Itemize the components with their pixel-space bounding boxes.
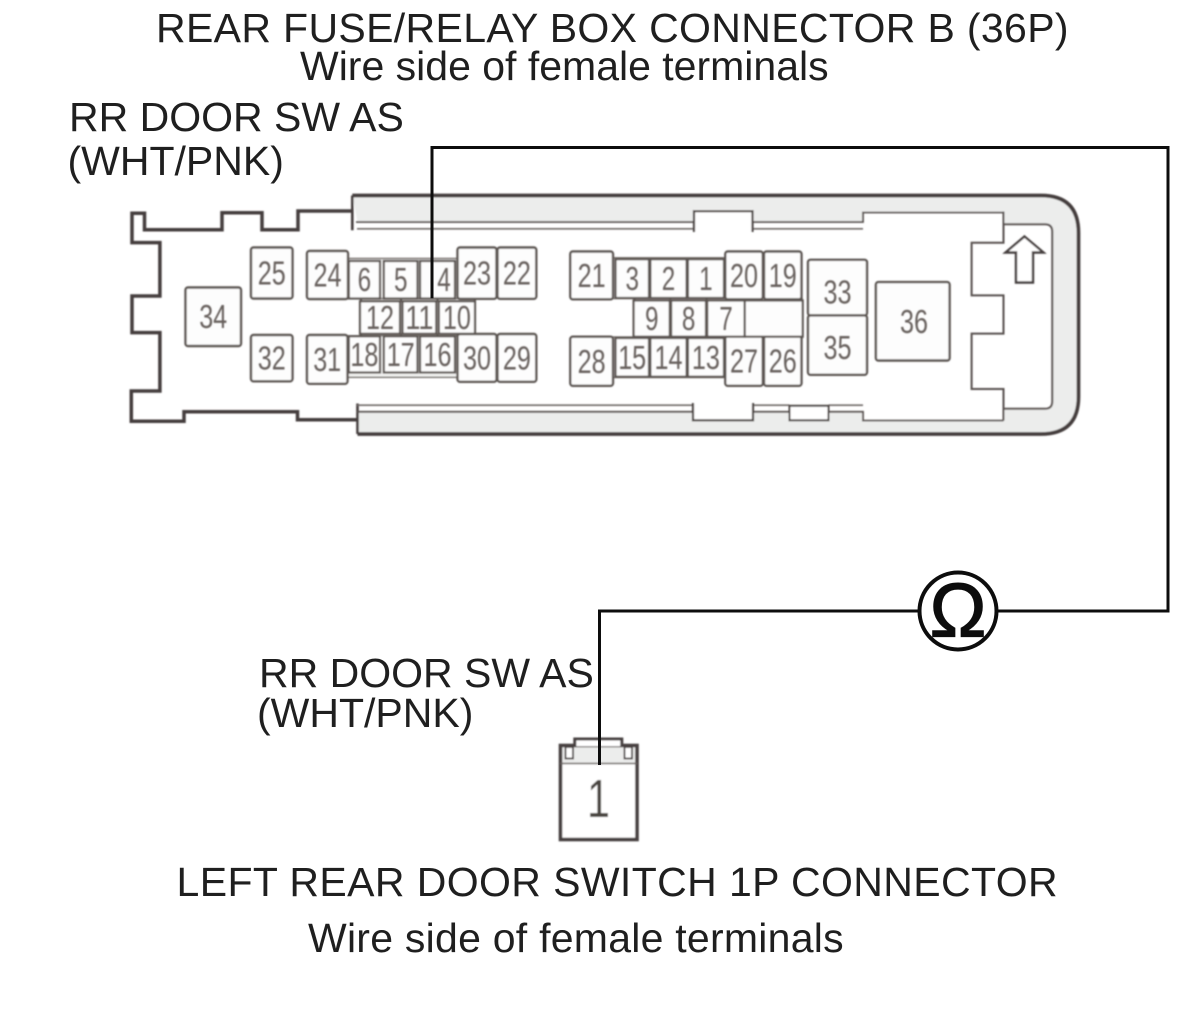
svg-text:1: 1 [699, 260, 713, 297]
svg-text:10: 10 [443, 299, 471, 336]
svg-text:3: 3 [625, 260, 639, 297]
svg-text:14: 14 [655, 339, 683, 376]
svg-text:Ω: Ω [930, 569, 987, 654]
svg-text:18: 18 [350, 336, 378, 373]
svg-text:27: 27 [730, 342, 758, 379]
svg-text:12: 12 [366, 299, 394, 336]
svg-text:34: 34 [199, 298, 227, 335]
svg-text:5: 5 [394, 261, 408, 298]
svg-text:4: 4 [437, 261, 451, 298]
svg-text:1: 1 [587, 769, 610, 829]
svg-text:35: 35 [824, 329, 852, 366]
svg-text:36: 36 [900, 303, 928, 340]
svg-text:16: 16 [424, 336, 452, 373]
svg-text:32: 32 [258, 340, 286, 377]
svg-text:24: 24 [314, 257, 342, 294]
svg-text:19: 19 [769, 257, 797, 294]
svg-text:9: 9 [645, 300, 659, 337]
svg-text:20: 20 [730, 257, 758, 294]
svg-text:30: 30 [463, 339, 491, 376]
svg-text:7: 7 [719, 300, 733, 337]
svg-text:13: 13 [692, 339, 720, 376]
svg-text:21: 21 [578, 257, 606, 294]
svg-text:23: 23 [463, 255, 491, 292]
svg-text:2: 2 [662, 260, 676, 297]
svg-text:31: 31 [313, 341, 341, 378]
svg-text:26: 26 [769, 342, 797, 379]
svg-text:25: 25 [258, 255, 286, 292]
svg-text:22: 22 [503, 255, 531, 292]
svg-text:28: 28 [578, 343, 606, 380]
svg-text:11: 11 [405, 299, 433, 336]
svg-text:33: 33 [824, 274, 852, 311]
svg-text:6: 6 [358, 261, 372, 298]
svg-text:15: 15 [618, 339, 646, 376]
svg-text:8: 8 [682, 300, 696, 337]
svg-text:29: 29 [503, 339, 531, 376]
svg-text:17: 17 [387, 336, 415, 373]
